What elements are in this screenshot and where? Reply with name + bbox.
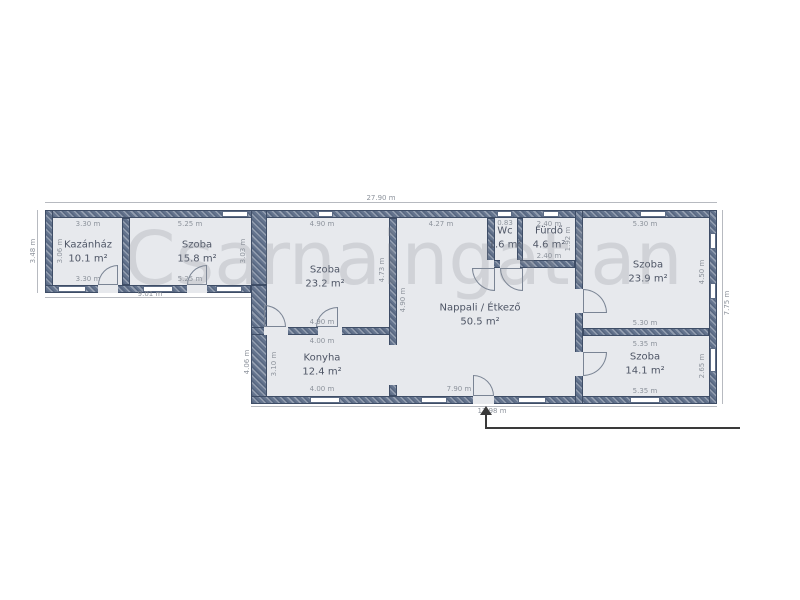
dimension-label: 4.50 m [698, 260, 706, 285]
wall-segment [122, 218, 130, 285]
door-opening [187, 285, 207, 293]
dimension-label: 5.30 m [633, 319, 658, 327]
dimension-label: 3.30 m [76, 275, 101, 283]
door-opening [473, 396, 494, 404]
dimension-label: 7.90 m [447, 385, 472, 393]
room-name: Nappali / Étkező [440, 302, 521, 316]
dimension-label: 1.92 m [564, 227, 572, 252]
room-area: 23.2 m² [305, 277, 344, 291]
wall-segment [583, 328, 709, 336]
dimension-label: 4.00 m [310, 337, 335, 345]
dimension-label: 3.48 m [29, 239, 37, 264]
dimension-label: 4.00 m [310, 385, 335, 393]
dimension-line [37, 210, 38, 293]
wall-segment [45, 210, 53, 293]
room-name: Szoba [625, 351, 664, 365]
dimension-label: 3.10 m [270, 352, 278, 377]
room-label: Konyha12.4 m² [302, 352, 341, 379]
dimension-line [45, 202, 717, 203]
wall-segment [251, 210, 267, 285]
dimension-label: 5.25 m [178, 220, 203, 228]
room-name: Konyha [302, 352, 341, 366]
room-area: 1.6 m² [489, 238, 522, 252]
window [543, 211, 559, 217]
room-name: Szoba [305, 264, 344, 278]
room-area: 12.4 m² [302, 365, 341, 379]
window [640, 211, 666, 217]
dimension-label: 4.90 m [310, 318, 335, 326]
room-label: Szoba14.1 m² [625, 351, 664, 378]
door-opening [389, 345, 397, 385]
dimension-label: 5.35 m [633, 387, 658, 395]
dimension-label: 4.90 m [310, 220, 335, 228]
entry-arrow-line [485, 427, 740, 429]
room-label: Wc1.6 m² [489, 225, 522, 252]
room-area: 4.6 m² [533, 238, 566, 252]
dimension-label: 2.40 m [537, 220, 562, 228]
window [58, 286, 86, 292]
dimension-label: 27.90 m [366, 194, 395, 202]
entry-arrow-line [485, 414, 487, 428]
door-opening [318, 327, 342, 335]
wall-segment [251, 285, 267, 404]
dimension-label: 7.75 m [723, 291, 731, 316]
dimension-label: 5.30 m [633, 220, 658, 228]
window [710, 233, 716, 249]
door-opening [575, 289, 583, 313]
room-area: 14.1 m² [625, 364, 664, 378]
dimension-label: 5.35 m [633, 340, 658, 348]
window [497, 211, 512, 217]
page: Csarnaingatlan Kazánház10.1 m²Szoba15.8 … [0, 0, 800, 600]
window [318, 211, 333, 217]
room-name: Szoba [177, 239, 216, 253]
door-opening [98, 285, 118, 293]
room-area: 15.8 m² [177, 252, 216, 266]
dimension-label: 5.25 m [178, 275, 203, 283]
dimension-label: 4.06 m [243, 350, 251, 375]
dimension-label: 2.40 m [537, 252, 562, 260]
room-name: Szoba [628, 259, 667, 273]
room-label: Szoba23.2 m² [305, 264, 344, 291]
window [310, 397, 340, 403]
window [421, 397, 447, 403]
door-opening [474, 260, 494, 268]
window [518, 397, 546, 403]
room-area: 23.9 m² [628, 272, 667, 286]
door-opening [575, 352, 583, 376]
room-area: 50.5 m² [440, 315, 521, 329]
wall-segment [45, 210, 717, 218]
dimension-label: 3.30 m [76, 220, 101, 228]
window [710, 283, 716, 299]
dimension-label: 0.83 [497, 219, 513, 227]
window [222, 211, 248, 217]
dimension-label: 3.06 m [56, 239, 64, 264]
door-opening [264, 327, 288, 335]
room-area: 10.1 m² [64, 252, 112, 266]
dimension-label: 9.01 m [138, 290, 163, 298]
dimension-label: 4.27 m [429, 220, 454, 228]
dimension-label: 4.90 m [399, 288, 407, 313]
room-label: Kazánház10.1 m² [64, 239, 112, 266]
dimension-label: 3.03 m [239, 239, 247, 264]
window [216, 286, 242, 292]
room-label: Szoba15.8 m² [177, 239, 216, 266]
room-name: Kazánház [64, 239, 112, 253]
door-opening [500, 260, 520, 268]
window [630, 397, 660, 403]
floor-plan: Csarnaingatlan Kazánház10.1 m²Szoba15.8 … [0, 0, 800, 600]
dimension-label: 4.73 m [378, 258, 386, 283]
room-label: Nappali / Étkező50.5 m² [440, 302, 521, 329]
room-label: Fürdő4.6 m² [533, 225, 566, 252]
window [710, 348, 716, 372]
room-label: Szoba23.9 m² [628, 259, 667, 286]
dimension-label: 2.65 m [698, 354, 706, 379]
